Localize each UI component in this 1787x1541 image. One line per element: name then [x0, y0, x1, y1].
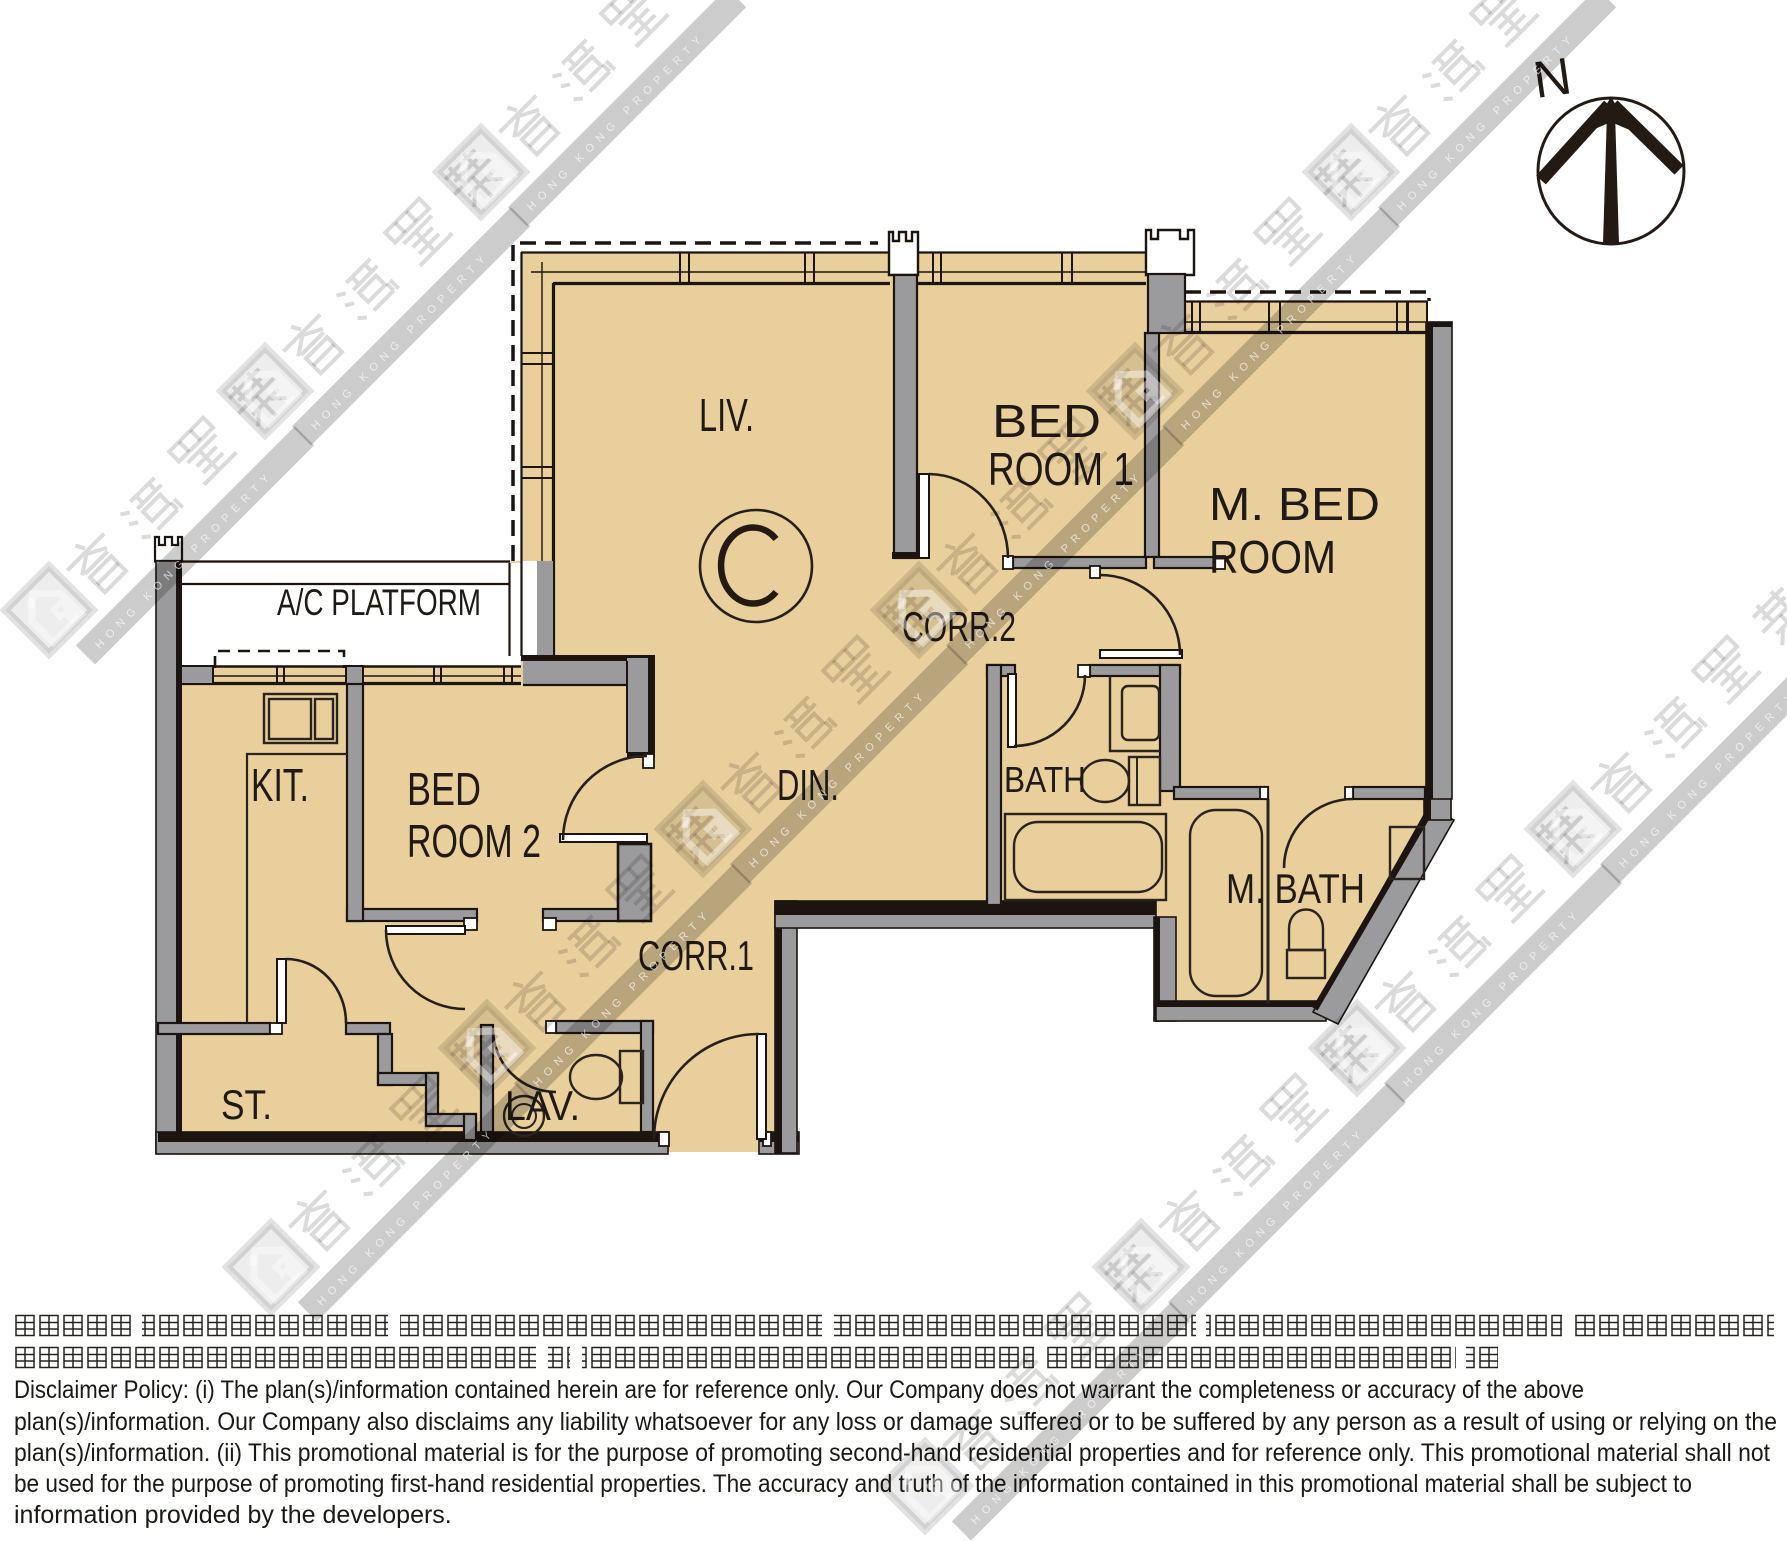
svg-text:plan(s)/information. (ii) This: plan(s)/information. (ii) This promotion…	[14, 1439, 1770, 1467]
svg-text:ST.: ST.	[221, 1081, 272, 1128]
svg-text:M. BATH: M. BATH	[1226, 865, 1365, 912]
svg-text:be used for the purpose of pro: be used for the purpose of promoting fir…	[14, 1470, 1692, 1498]
svg-text:ROOM: ROOM	[1209, 531, 1336, 583]
svg-text:plan(s)/information. Our Compa: plan(s)/information. Our Company also di…	[14, 1408, 1777, 1436]
svg-text:BED: BED	[407, 763, 481, 815]
svg-text:BED: BED	[992, 395, 1101, 447]
svg-text:Disclaimer Policy: (i) The pla: Disclaimer Policy: (i) The plan(s)/infor…	[14, 1376, 1584, 1404]
svg-text:information provided by the de: information provided by the developers.	[14, 1501, 452, 1529]
svg-text:KIT.: KIT.	[251, 759, 309, 811]
svg-text:LIV.: LIV.	[699, 389, 754, 441]
svg-text:A/C PLATFORM: A/C PLATFORM	[277, 582, 481, 623]
svg-text:BATH: BATH	[1004, 759, 1086, 800]
svg-text:M. BED: M. BED	[1209, 478, 1380, 530]
svg-text:ROOM 2: ROOM 2	[407, 815, 541, 867]
